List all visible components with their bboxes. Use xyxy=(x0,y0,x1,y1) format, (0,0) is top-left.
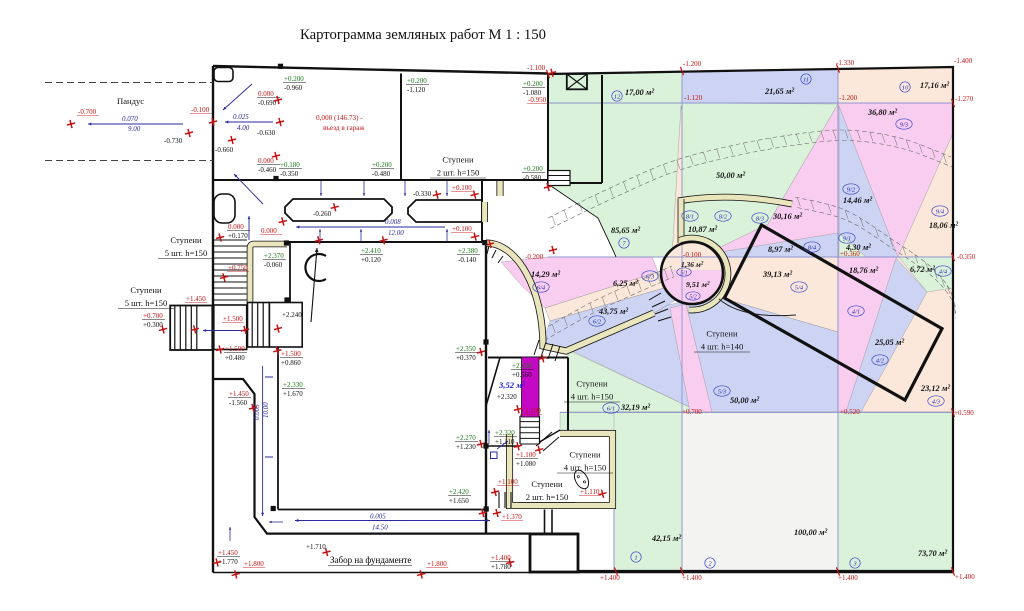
svg-text:+0.560: +0.560 xyxy=(512,371,532,379)
svg-text:+0.180: +0.180 xyxy=(280,161,300,169)
svg-text:100,00 м2: 100,00 м2 xyxy=(794,528,828,537)
svg-text:+0.520: +0.520 xyxy=(840,408,860,416)
svg-text:14,46 м2: 14,46 м2 xyxy=(843,196,872,205)
svg-text:11: 11 xyxy=(803,76,809,83)
svg-text:4/2: 4/2 xyxy=(876,357,885,364)
svg-text:6/1: 6/1 xyxy=(607,405,615,412)
svg-text:18,76 м2: 18,76 м2 xyxy=(849,266,878,275)
svg-text:9.00: 9.00 xyxy=(128,125,141,133)
svg-text:+1.500: +1.500 xyxy=(281,350,301,358)
svg-text:8/2: 8/2 xyxy=(719,213,728,220)
svg-text:6/3: 6/3 xyxy=(646,273,655,280)
svg-text:4/3: 4/3 xyxy=(932,398,941,405)
svg-text:+2.320: +2.320 xyxy=(497,393,517,401)
svg-text:18,06 м2: 18,06 м2 xyxy=(929,221,958,230)
svg-text:43,75 м2: 43,75 м2 xyxy=(598,307,628,316)
svg-text:+1.500: +1.500 xyxy=(223,315,243,323)
svg-text:-0.260: -0.260 xyxy=(313,210,332,218)
svg-text:6,25 м2: 6,25 м2 xyxy=(613,279,638,288)
svg-text:-0.200: -0.200 xyxy=(525,253,544,261)
svg-text:+1.110: +1.110 xyxy=(495,438,515,446)
svg-text:-0.950: -0.950 xyxy=(528,96,547,104)
svg-text:0.000: 0.000 xyxy=(258,90,274,98)
svg-text:10,87 м2: 10,87 м2 xyxy=(688,225,717,234)
svg-text:-0.350: -0.350 xyxy=(957,253,976,261)
svg-text:+2.270: +2.270 xyxy=(456,434,476,442)
svg-text:39,13 м2: 39,13 м2 xyxy=(762,270,792,279)
svg-text:14.50: 14.50 xyxy=(372,524,388,532)
svg-text:9/1: 9/1 xyxy=(843,235,851,242)
svg-text:1: 1 xyxy=(634,554,637,561)
svg-text:42,15 м2: 42,15 м2 xyxy=(651,534,681,543)
svg-text:-0.660: -0.660 xyxy=(215,146,234,154)
svg-text:+1.800: +1.800 xyxy=(427,560,447,568)
svg-text:+1.400: +1.400 xyxy=(491,554,511,562)
svg-text:36,80 м2: 36,80 м2 xyxy=(867,108,897,117)
svg-text:-1.330: -1.330 xyxy=(836,59,855,67)
svg-text:+1.370: +1.370 xyxy=(502,513,522,521)
svg-text:4,30 м2: 4,30 м2 xyxy=(845,243,871,252)
svg-text:+0.120: +0.120 xyxy=(361,256,381,264)
svg-text:Забор на фундаменте: Забор на фундаменте xyxy=(330,555,411,565)
svg-text:8/4: 8/4 xyxy=(808,244,817,251)
svg-text:12.00: 12.00 xyxy=(388,229,404,237)
svg-text:21,65 м2: 21,65 м2 xyxy=(764,87,794,96)
svg-text:+1.800: +1.800 xyxy=(244,560,264,568)
svg-text:6/2: 6/2 xyxy=(593,318,602,325)
svg-text:4/4: 4/4 xyxy=(939,268,948,275)
svg-text:-0.730: -0.730 xyxy=(164,137,183,145)
svg-text:+0.100: +0.100 xyxy=(452,184,472,192)
svg-text:6/4: 6/4 xyxy=(537,284,546,291)
svg-text:+1.400: +1.400 xyxy=(682,574,702,582)
svg-text:Пандус: Пандус xyxy=(117,96,144,106)
svg-text:5 шт. h=150: 5 шт. h=150 xyxy=(125,298,168,308)
svg-text:5/3: 5/3 xyxy=(718,388,727,395)
svg-text:0.070: 0.070 xyxy=(122,115,138,123)
svg-text:+1.710: +1.710 xyxy=(306,543,326,551)
svg-text:17,16 м2: 17,16 м2 xyxy=(920,81,949,90)
svg-text:Ступени: Ступени xyxy=(576,379,608,389)
svg-text:2 шт. h=150: 2 шт. h=150 xyxy=(437,168,480,178)
svg-text:Ступени: Ступени xyxy=(130,285,162,295)
svg-text:10: 10 xyxy=(902,84,909,91)
svg-text:8/3: 8/3 xyxy=(756,215,765,222)
svg-text:+0.480: +0.480 xyxy=(225,354,245,362)
svg-text:9/2: 9/2 xyxy=(847,186,856,193)
svg-text:85,65 м2: 85,65 м2 xyxy=(611,226,640,235)
svg-text:+1.100: +1.100 xyxy=(498,478,518,486)
svg-text:4 шт. h=140: 4 шт. h=140 xyxy=(701,342,744,352)
svg-text:5/1: 5/1 xyxy=(680,270,688,276)
svg-text:30,16 м2: 30,16 м2 xyxy=(772,212,802,221)
svg-text:-0.140: -0.140 xyxy=(458,256,477,264)
svg-text:0.025: 0.025 xyxy=(233,113,249,121)
svg-text:-0.100: -0.100 xyxy=(683,251,702,259)
svg-text:-0.100: -0.100 xyxy=(191,106,210,114)
svg-text:+2.350: +2.350 xyxy=(456,345,476,353)
svg-text:+1.080: +1.080 xyxy=(516,460,536,468)
svg-text:-0.690: -0.690 xyxy=(258,99,277,107)
svg-text:+0.200: +0.200 xyxy=(523,165,543,173)
svg-text:-0.060: -0.060 xyxy=(264,261,283,269)
svg-text:+1.400: +1.400 xyxy=(838,574,858,582)
svg-text:25,05 м2: 25,05 м2 xyxy=(874,338,904,347)
svg-text:+1.780: +1.780 xyxy=(491,563,511,571)
svg-text:73,70 м2: 73,70 м2 xyxy=(918,549,947,558)
svg-text:32,19 м2: 32,19 м2 xyxy=(620,403,650,412)
svg-text:0.005: 0.005 xyxy=(370,513,386,521)
svg-text:0,000 (146.73) -: 0,000 (146.73) - xyxy=(316,114,363,122)
svg-text:Ступени: Ступени xyxy=(170,235,202,245)
svg-text:-0.330: -0.330 xyxy=(413,190,432,198)
svg-text:3,52 м2: 3,52 м2 xyxy=(498,380,525,390)
svg-text:+0.200: +0.200 xyxy=(523,80,543,88)
svg-text:10.00: 10.00 xyxy=(262,402,270,418)
svg-text:въезд в гараж: въезд в гараж xyxy=(323,124,364,132)
svg-text:+2.330: +2.330 xyxy=(512,362,532,370)
svg-text:+0.200: +0.200 xyxy=(407,77,427,85)
svg-text:12: 12 xyxy=(614,93,621,100)
svg-text:Ступени: Ступени xyxy=(442,155,474,165)
svg-text:Картограмма земляных работ М: Картограмма земляных работ М 1 : 150 xyxy=(300,27,546,43)
svg-text:+1.110: +1.110 xyxy=(580,488,600,496)
svg-text:+0.300: +0.300 xyxy=(143,321,163,329)
svg-text:-1.400: -1.400 xyxy=(954,57,973,65)
svg-text:+2.370: +2.370 xyxy=(264,252,284,260)
svg-text:5/2: 5/2 xyxy=(689,294,697,300)
svg-text:6,72 м2: 6,72 м2 xyxy=(910,265,935,274)
svg-text:8/1: 8/1 xyxy=(686,213,694,220)
svg-text:+1.670: +1.670 xyxy=(283,390,303,398)
svg-text:-0.630: -0.630 xyxy=(257,129,276,137)
svg-text:0.000: 0.000 xyxy=(258,157,274,165)
svg-text:4 шт. h=150: 4 шт. h=150 xyxy=(571,392,614,402)
svg-text:+0.200: +0.200 xyxy=(372,161,392,169)
svg-text:4.00: 4.00 xyxy=(237,124,250,132)
svg-text:+0.200: +0.200 xyxy=(284,75,304,83)
svg-text:23,12 м2: 23,12 м2 xyxy=(920,384,950,393)
svg-text:+0.750: +0.750 xyxy=(228,264,248,272)
svg-text:-1.200: -1.200 xyxy=(683,60,702,68)
svg-text:+0.170: +0.170 xyxy=(228,232,248,240)
svg-text:-0.460: -0.460 xyxy=(258,166,277,174)
svg-text:-1.120: -1.120 xyxy=(407,86,426,94)
svg-text:50,00 м2: 50,00 м2 xyxy=(730,396,759,405)
svg-text:+1.450: +1.450 xyxy=(218,549,238,557)
svg-text:2 шт. h=150: 2 шт. h=150 xyxy=(526,492,569,502)
svg-text:-1.560: -1.560 xyxy=(229,399,248,407)
svg-text:-0.350: -0.350 xyxy=(280,170,299,178)
svg-text:4 шт. h=150: 4 шт. h=150 xyxy=(564,463,607,473)
svg-text:Ступени: Ступени xyxy=(706,329,738,339)
svg-text:+0.700: +0.700 xyxy=(682,408,702,416)
svg-text:+1.500: +1.500 xyxy=(225,345,245,353)
svg-text:+2.410: +2.410 xyxy=(361,247,381,255)
svg-text:-0.960: -0.960 xyxy=(284,84,303,92)
svg-text:-0.580: -0.580 xyxy=(523,174,542,182)
svg-text:+1.100: +1.100 xyxy=(521,407,541,415)
svg-text:+2.330: +2.330 xyxy=(283,381,303,389)
svg-text:3: 3 xyxy=(852,560,857,567)
svg-text:-0.700: -0.700 xyxy=(78,108,97,116)
svg-text:-1.200: -1.200 xyxy=(839,94,858,102)
svg-text:+1.100: +1.100 xyxy=(516,451,536,459)
svg-text:+2.240: +2.240 xyxy=(282,311,302,319)
svg-text:+0.370: +0.370 xyxy=(456,354,476,362)
svg-text:+1.230: +1.230 xyxy=(456,443,476,451)
svg-text:5/4: 5/4 xyxy=(795,284,804,291)
svg-text:-1.270: -1.270 xyxy=(955,95,974,103)
svg-text:9/4: 9/4 xyxy=(936,208,945,215)
svg-text:+2.420: +2.420 xyxy=(449,488,469,496)
svg-text:0.000: 0.000 xyxy=(261,227,277,235)
svg-text:5 шт. h=150: 5 шт. h=150 xyxy=(165,248,208,258)
svg-text:9,51 м2: 9,51 м2 xyxy=(686,280,710,289)
svg-text:50,00 м2: 50,00 м2 xyxy=(716,171,745,180)
svg-text:+1.400: +1.400 xyxy=(955,573,975,581)
svg-text:0.008: 0.008 xyxy=(385,218,401,226)
svg-text:8,97 м2: 8,97 м2 xyxy=(768,245,793,254)
svg-text:+0.590: +0.590 xyxy=(954,409,974,417)
svg-text:+2.380: +2.380 xyxy=(458,247,478,255)
svg-text:+2.320: +2.320 xyxy=(495,429,515,437)
svg-text:17,00 м2: 17,00 м2 xyxy=(625,88,654,97)
svg-text:+1.450: +1.450 xyxy=(229,390,249,398)
svg-text:-1.120: -1.120 xyxy=(684,94,703,102)
svg-text:+1.450: +1.450 xyxy=(186,295,206,303)
svg-text:+0.860: +0.860 xyxy=(281,359,301,367)
svg-text:+0.700: +0.700 xyxy=(143,312,163,320)
svg-text:+0.100: +0.100 xyxy=(452,225,472,233)
svg-text:-0.480: -0.480 xyxy=(372,170,391,178)
svg-text:-1.100: -1.100 xyxy=(527,64,546,72)
svg-text:0.000: 0.000 xyxy=(228,223,244,231)
svg-text:14,29 м2: 14,29 м2 xyxy=(531,270,560,279)
svg-text:Ступени: Ступени xyxy=(531,479,563,489)
svg-text:9/3: 9/3 xyxy=(900,121,909,128)
svg-text:Ступени: Ступени xyxy=(569,450,601,460)
svg-text:4/1: 4/1 xyxy=(852,308,860,315)
svg-text:+1.650: +1.650 xyxy=(449,497,469,505)
